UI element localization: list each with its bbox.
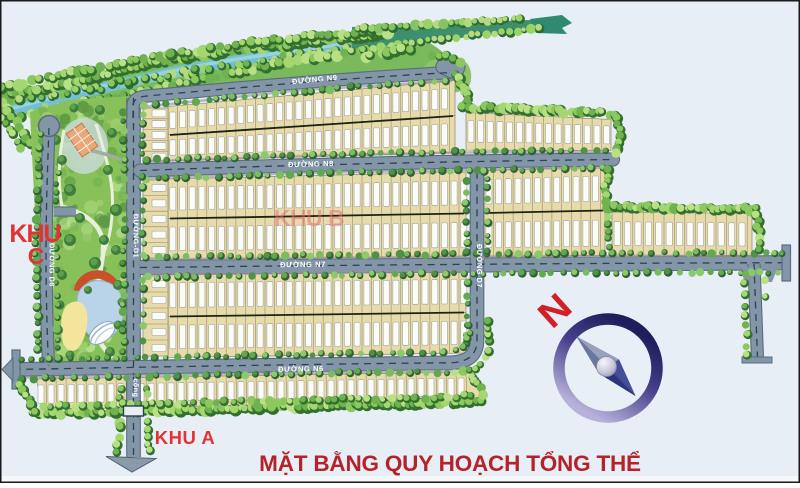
svg-text:ĐƯỜNG N8: ĐƯỜNG N8 [288, 159, 334, 169]
svg-text:ĐƯỜNG-D1: ĐƯỜNG-D1 [132, 214, 141, 258]
svg-text:KHU B: KHU B [274, 205, 344, 231]
svg-text:ĐƯỜNG N6: ĐƯỜNG N6 [278, 364, 324, 374]
svg-text:ĐƯỜNG D7: ĐƯỜNG D7 [475, 244, 484, 288]
svg-text:cống: cống [132, 378, 140, 397]
svg-text:KHU A: KHU A [155, 427, 215, 448]
svg-text:ĐƯỜNG D6: ĐƯỜNG D6 [48, 243, 57, 287]
svg-text:MẶT BẰNG QUY HOẠCH TỔNG THỂ: MẶT BẰNG QUY HOẠCH TỔNG THỂ [259, 451, 641, 476]
svg-text:ĐƯỜNG N7: ĐƯỜNG N7 [280, 260, 326, 269]
svg-text:C: C [28, 243, 45, 269]
